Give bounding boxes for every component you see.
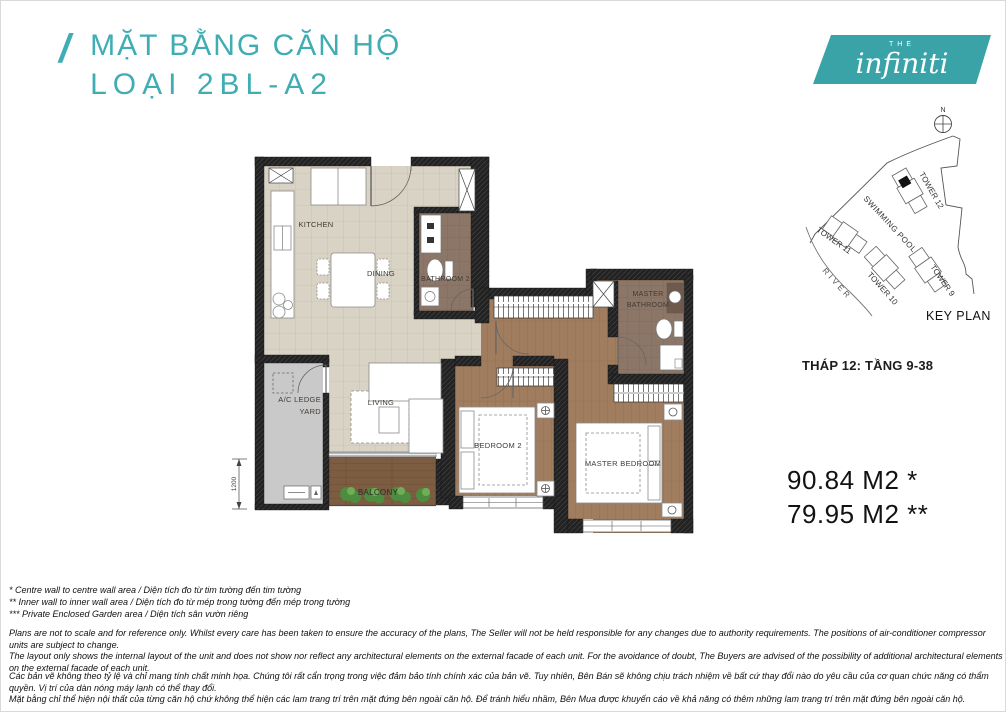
river-label: RIVER <box>821 266 854 301</box>
room-label-dining: DINING <box>367 269 395 278</box>
master-bedroom-window <box>583 520 671 532</box>
disclaimer-english: Plans are not to scale and for reference… <box>9 628 1004 674</box>
area-inner-wall: 79.95 M2 ** <box>787 497 928 531</box>
pillow <box>461 452 474 489</box>
room-label-ac-ledge-1: A/C LEDGE <box>278 395 321 404</box>
shaft-box <box>593 281 614 307</box>
room-label-bathroom2: BATHROOM 2 <box>421 276 470 283</box>
wardrobe <box>497 368 554 386</box>
disclaimer-en-p1: Plans are not to scale and for reference… <box>9 628 1004 651</box>
keyplan-title: KEY PLAN <box>926 309 991 323</box>
dimension-1200: 1200 <box>231 459 247 509</box>
north-label: N <box>940 107 945 114</box>
title-slash-icon: / <box>59 29 70 105</box>
wardrobe <box>614 384 684 402</box>
nightstand <box>664 404 682 420</box>
sink <box>669 291 681 303</box>
site-boundary <box>941 136 974 294</box>
shaft-box <box>269 168 293 183</box>
sofa <box>369 363 441 401</box>
disclaimer-vi-p2: Mặt bằng chỉ thể hiện nội thất của từng … <box>9 694 1004 706</box>
footnote-garden: *** Private Enclosed Garden area / Diện … <box>9 608 350 620</box>
room-label-master-bedroom: MASTER BEDROOM <box>585 459 661 468</box>
sofa-chaise <box>409 399 443 453</box>
footnote-centre-wall: * Centre wall to centre wall area / Diện… <box>9 584 350 596</box>
tower-floor-info: THÁP 12: TẦNG 9-38 <box>802 358 933 373</box>
pillow <box>461 411 474 448</box>
brochure-page: / MẶT BẰNG CĂN HỘ LOẠI 2BL-A2 THE infini… <box>0 0 1006 712</box>
bedroom2-window <box>463 497 543 508</box>
key-plan: N TOWER 12 SWIMMING POOL TOWER 11 TOWER … <box>801 103 1001 343</box>
nightstand <box>537 481 554 496</box>
area-footnotes: * Centre wall to centre wall area / Diện… <box>9 584 350 620</box>
pillow <box>648 426 660 461</box>
room-label-master-bathroom-2: BATHROOM <box>627 302 669 309</box>
sink <box>421 287 439 306</box>
pillow <box>648 465 660 500</box>
page-title: / MẶT BẰNG CĂN HỘ LOẠI 2BL-A2 <box>59 27 401 105</box>
wardrobe <box>494 296 593 318</box>
room-label-balcony: BALCONY <box>358 488 399 497</box>
nightstand <box>662 503 682 517</box>
room-label-bedroom2: BEDROOM 2 <box>474 441 522 450</box>
disclaimer-vi-p1: Các bản vẽ không theo tỷ lệ và chỉ mang … <box>9 671 1004 694</box>
dining-table <box>331 253 375 307</box>
infiniti-logo: THE infiniti <box>813 35 991 84</box>
shaft-box <box>459 169 475 211</box>
area-centre-wall: 90.84 M2 * <box>787 463 928 497</box>
toilet <box>656 319 683 339</box>
title-line-1: MẶT BẰNG CĂN HỘ <box>90 27 401 65</box>
floor-plan: KITCHEN DINING BATHROOM 2 MASTER BATHROO… <box>231 141 711 571</box>
unit-areas: 90.84 M2 * 79.95 M2 ** <box>787 463 928 531</box>
room-label-living: LIVING <box>368 398 394 407</box>
room-label-kitchen: KITCHEN <box>298 220 333 229</box>
shower <box>660 345 683 370</box>
nightstand <box>537 403 554 418</box>
north-compass-icon: N <box>935 107 952 133</box>
vanity <box>421 215 441 253</box>
kitchen-cabinet <box>311 168 366 205</box>
room-label-ac-ledge-2: YARD <box>300 407 322 416</box>
disclaimer-vietnamese: Các bản vẽ không theo tỷ lệ và chỉ mang … <box>9 671 1004 706</box>
footnote-inner-wall: ** Inner wall to inner wall area / Diện … <box>9 596 350 608</box>
logo-name-text: infiniti <box>856 49 949 79</box>
coffee-table <box>379 407 399 433</box>
title-line-2: LOẠI 2BL-A2 <box>90 65 401 105</box>
dimension-label: 1200 <box>231 476 238 491</box>
room-label-master-bathroom-1: MASTER <box>633 291 664 298</box>
